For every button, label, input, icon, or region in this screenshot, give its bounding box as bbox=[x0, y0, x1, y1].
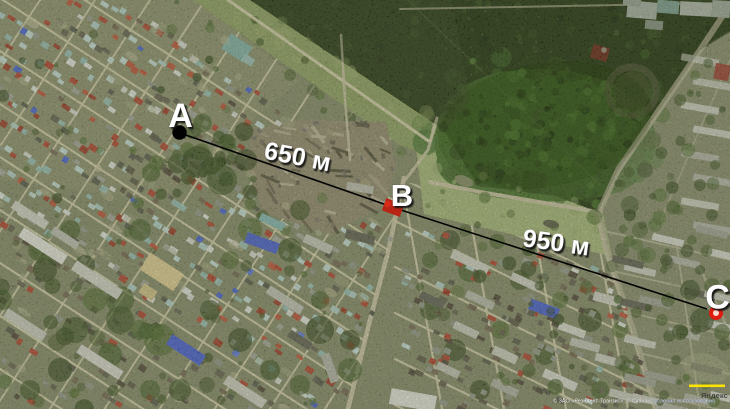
svg-text:Яндекс: Яндекс bbox=[701, 391, 728, 400]
svg-text:B: B bbox=[391, 178, 413, 213]
svg-text:© ЗАО «Резидент-Транзит», © Ск: © ЗАО «Резидент-Транзит», © Сканэкс Усло… bbox=[553, 398, 715, 405]
svg-text:A: A bbox=[168, 97, 193, 135]
svg-text:C: C bbox=[705, 279, 730, 317]
